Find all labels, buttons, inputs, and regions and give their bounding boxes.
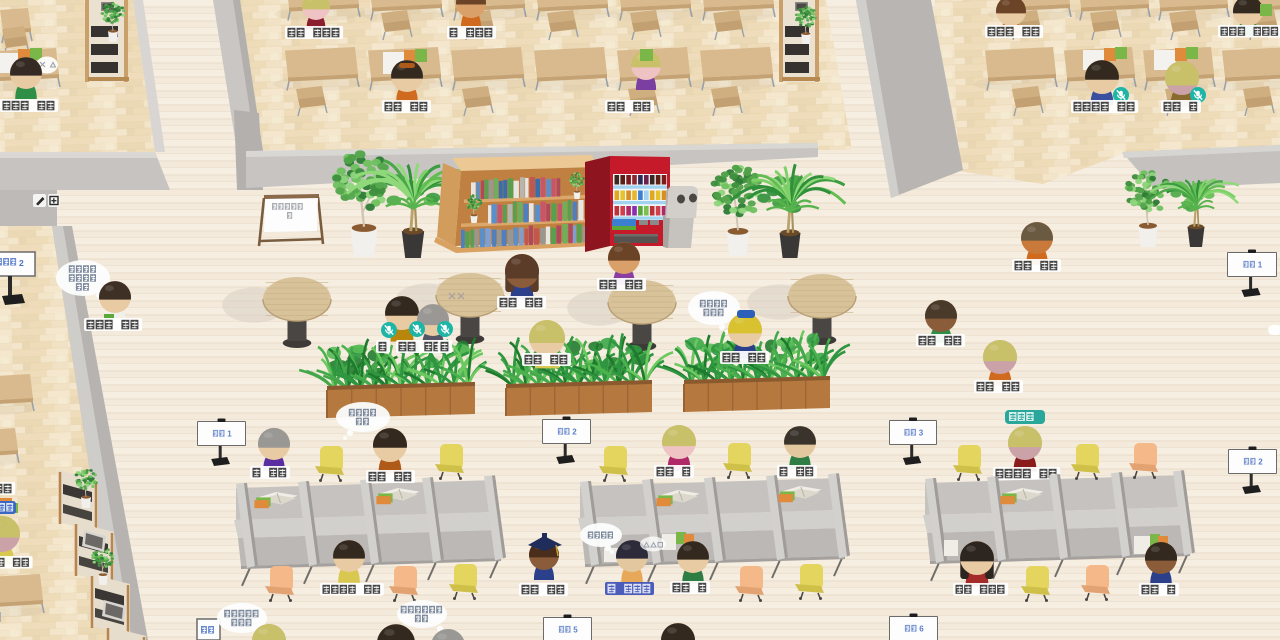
svg-text:2: 2 bbox=[19, 258, 24, 268]
svg-text:3: 3 bbox=[919, 429, 924, 438]
svg-text:6: 6 bbox=[919, 625, 924, 634]
svg-text:2: 2 bbox=[1258, 458, 1263, 467]
svg-text:1: 1 bbox=[227, 430, 232, 439]
svg-text:5: 5 bbox=[573, 626, 578, 635]
svg-text:1: 1 bbox=[1258, 261, 1263, 270]
svg-text:2: 2 bbox=[572, 428, 577, 437]
